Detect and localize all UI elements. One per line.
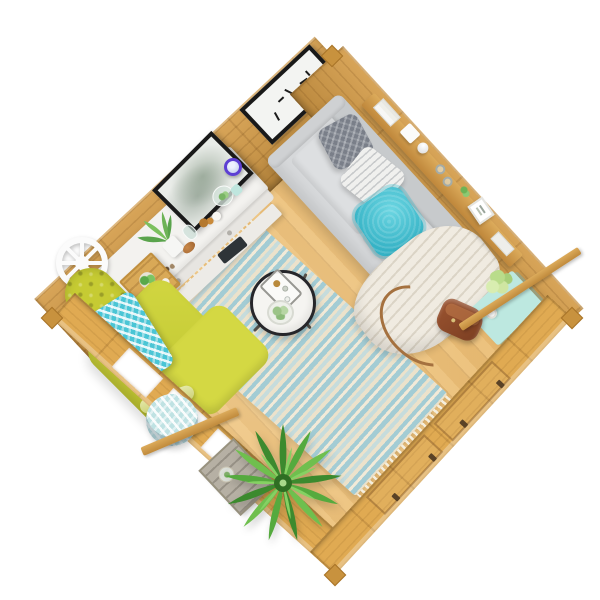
palm-plant (218, 418, 348, 548)
book-stack (373, 98, 401, 127)
small-picture-frame (467, 197, 494, 225)
white-box (399, 123, 420, 144)
coffee-table (250, 270, 316, 336)
art-mark (278, 96, 284, 102)
drawer-knob (226, 229, 233, 236)
summerhouse-room-render (0, 0, 600, 600)
art-mark (274, 112, 280, 121)
purple-round-mirror (224, 158, 242, 176)
succulent-bowl (267, 300, 294, 325)
bottle (272, 279, 282, 289)
bottle (281, 284, 289, 292)
